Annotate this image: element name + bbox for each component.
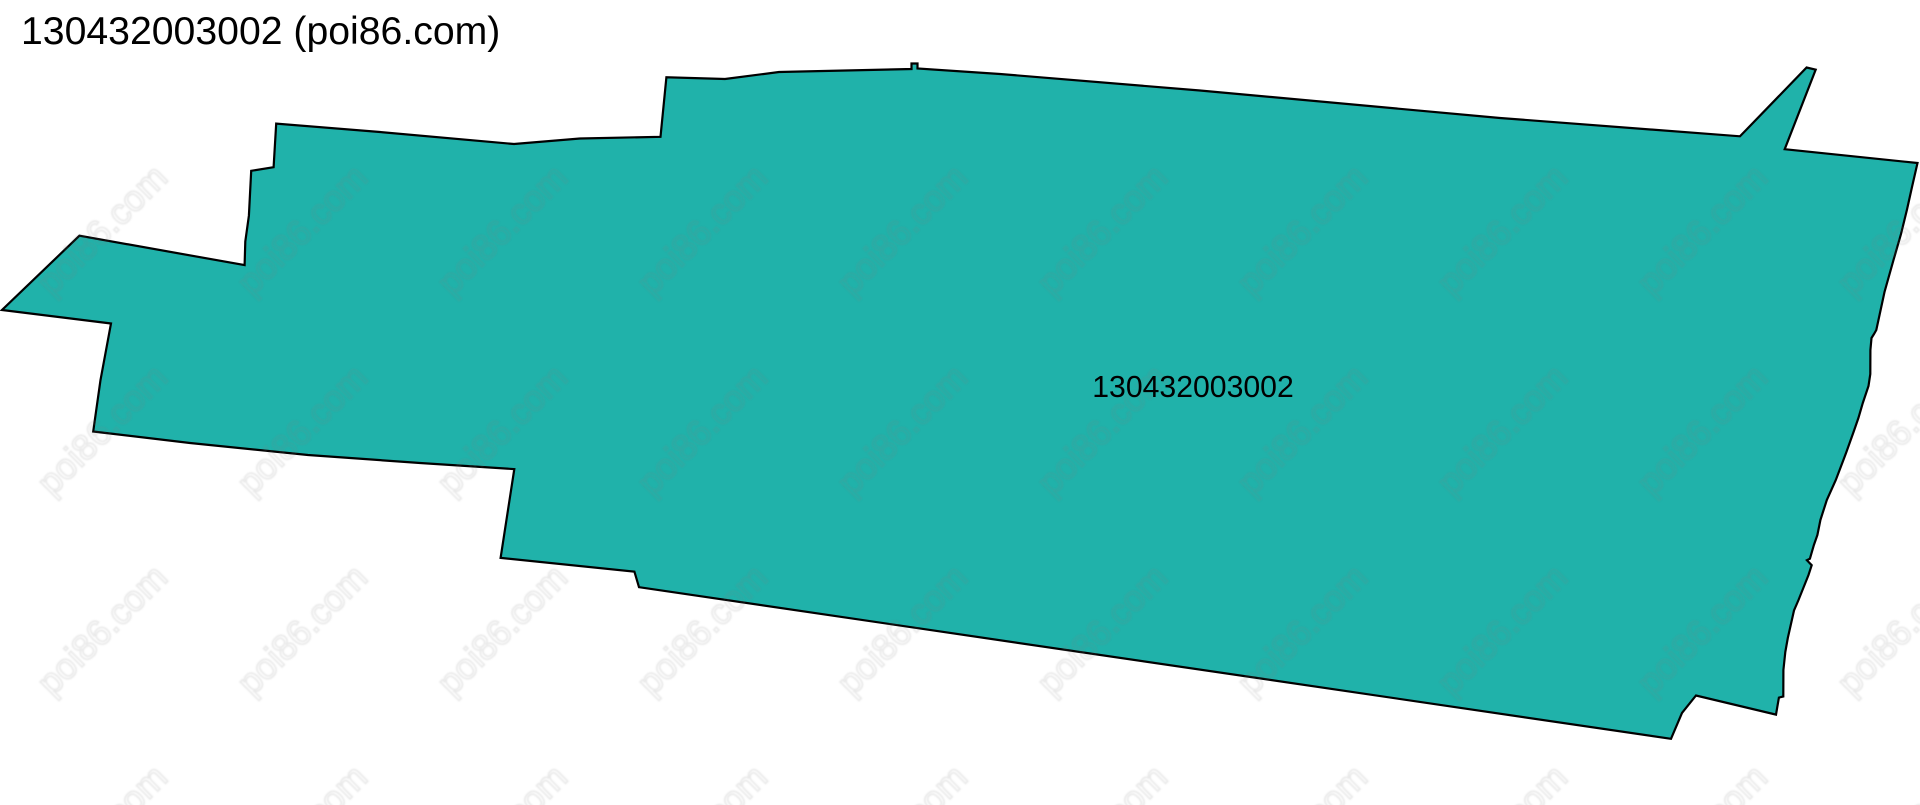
svg-text:130432003002: 130432003002 xyxy=(1092,371,1293,404)
svg-text:130432003002 (poi86.com): 130432003002 (poi86.com) xyxy=(21,10,500,53)
